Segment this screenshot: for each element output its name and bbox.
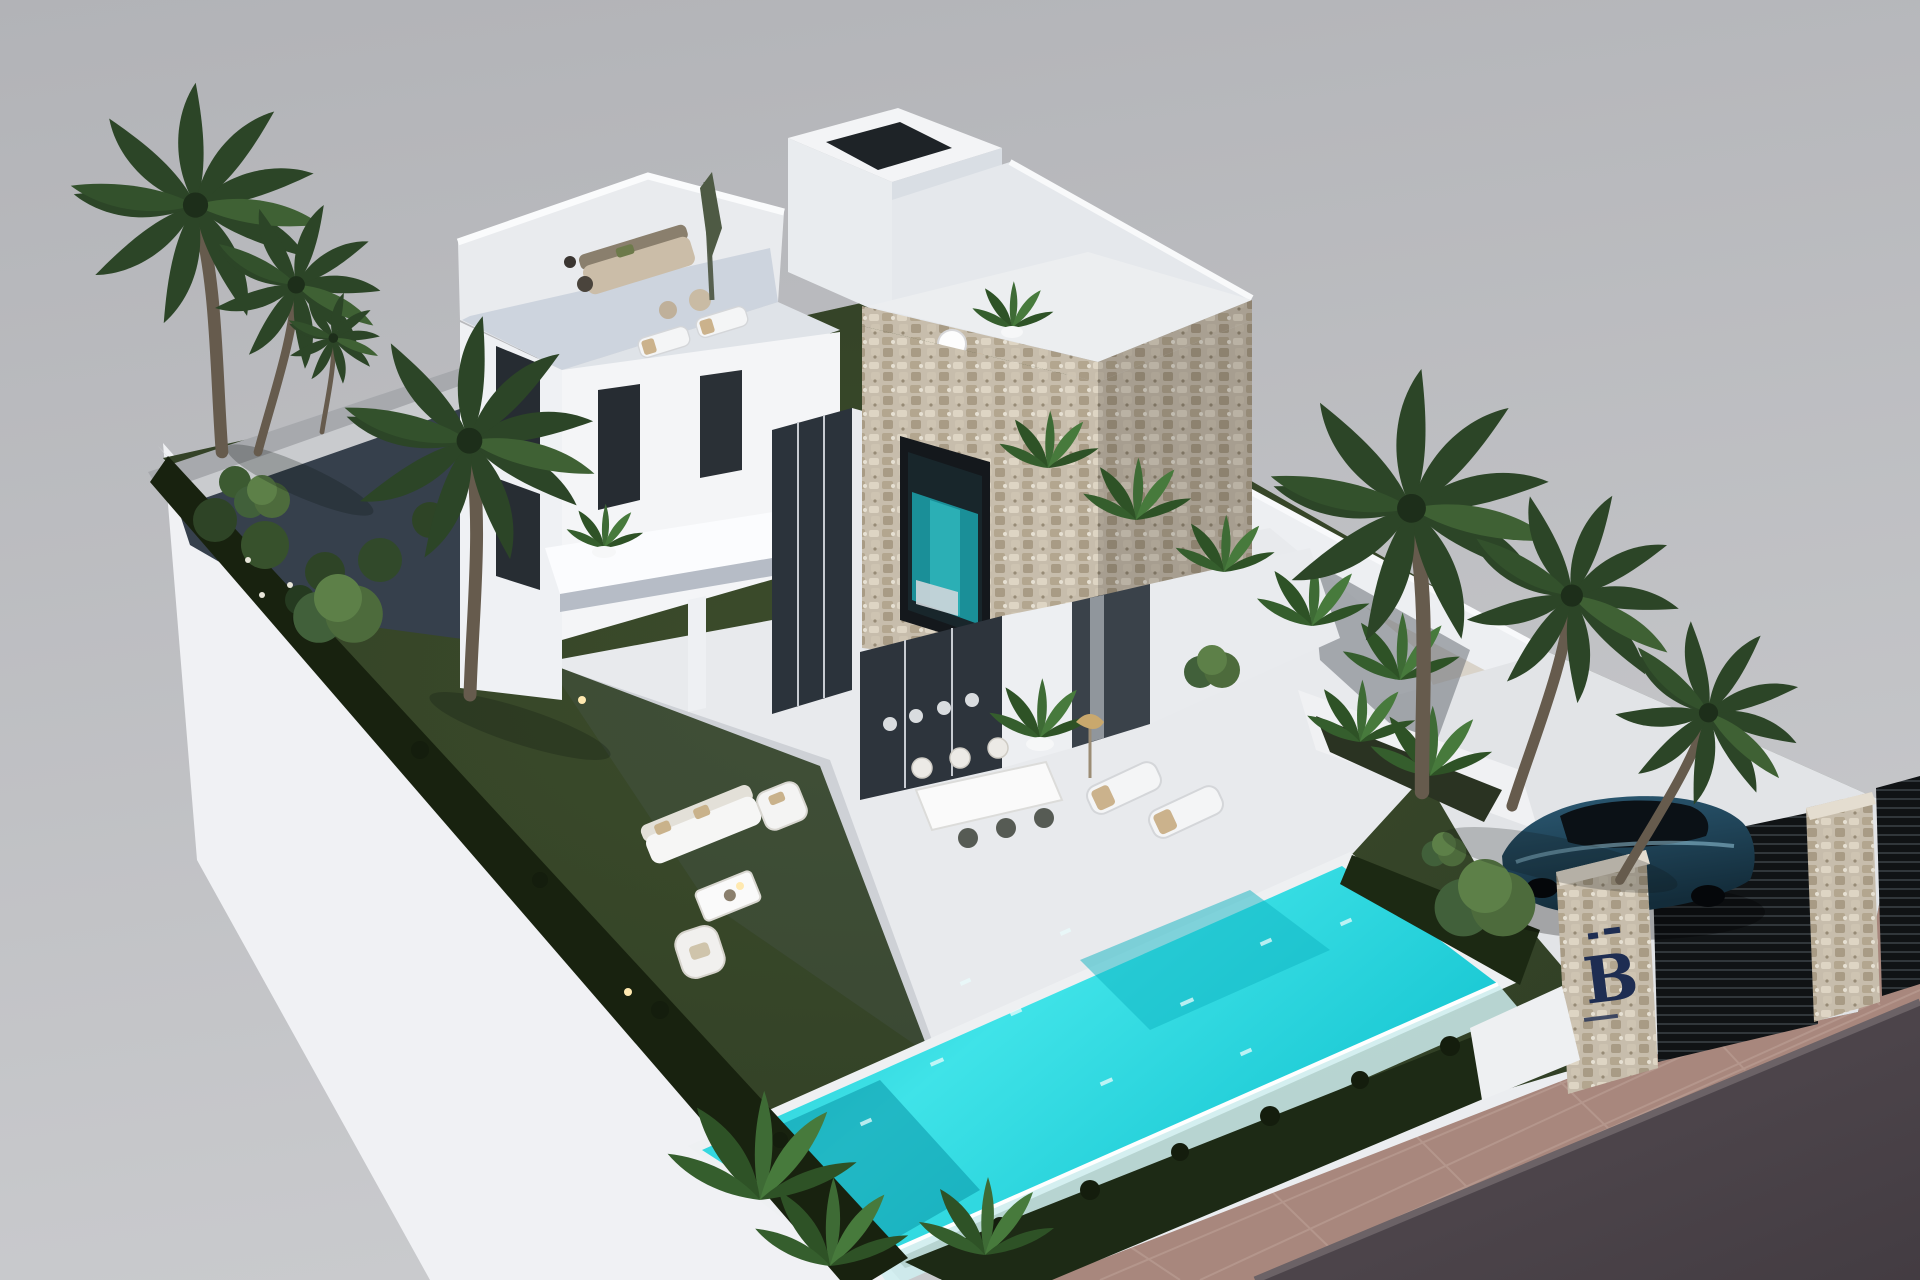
scene-canvas: B xyxy=(0,0,1920,1280)
car-wheel xyxy=(1691,885,1725,907)
roof-ottoman xyxy=(689,289,711,311)
roof-ottoman xyxy=(659,301,677,319)
car-glass-roof xyxy=(1560,801,1708,848)
architectural-render: B xyxy=(0,0,1920,1280)
plant-pot xyxy=(1026,737,1054,751)
roof-side-table xyxy=(577,276,593,292)
plant-pot xyxy=(592,546,616,558)
fence-slats xyxy=(1876,776,1920,996)
column xyxy=(688,596,706,712)
window xyxy=(700,370,742,478)
roof-lantern xyxy=(564,256,576,268)
gate-logo-crown xyxy=(1588,932,1599,939)
plant-pot xyxy=(1001,326,1023,338)
cube-window xyxy=(900,436,990,648)
gate-pillar-right xyxy=(1806,792,1880,1022)
window xyxy=(598,384,640,510)
gate-logo: B xyxy=(1580,939,1643,1020)
